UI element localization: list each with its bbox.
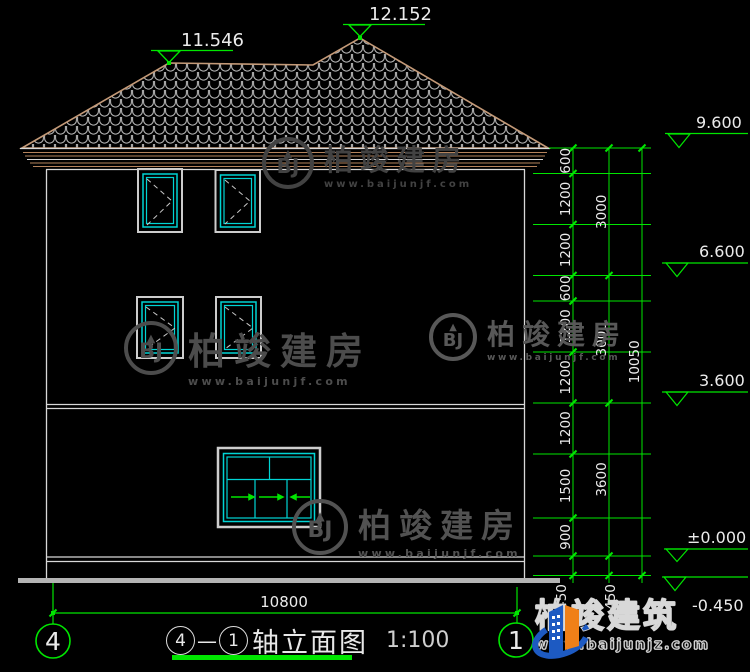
dim-label: 3000 [594, 195, 610, 229]
dim-label: 600 [558, 148, 574, 174]
roof-tile-surface [22, 38, 548, 148]
roof [20, 38, 550, 167]
title-underline [172, 655, 352, 660]
grip-dot [358, 36, 362, 40]
slide-arrow-icon [231, 495, 310, 500]
casement-swing-icon [225, 180, 250, 224]
window-mid-right [216, 297, 261, 358]
elevation-value: 6.600 [699, 242, 745, 261]
title-axis-right: 1 [219, 626, 248, 655]
axis-number-right: 1 [508, 626, 524, 655]
dim-label: 1500 [558, 469, 574, 503]
elevation-triangle-icon [666, 263, 688, 277]
dim-label: 1200 [558, 309, 574, 343]
window-mid-left [137, 297, 183, 358]
peak-level-value: 12.152 [369, 4, 432, 25]
title-separator: — [197, 629, 217, 653]
casement-swing-icon [147, 179, 172, 225]
elevation-triangle-icon [668, 134, 690, 148]
dimension-labels: 600 1200 1200 600 1200 1200 1200 1500 90… [554, 148, 643, 610]
dim-label: 1200 [558, 182, 574, 216]
window-ground [218, 448, 320, 527]
window-top-left [138, 169, 182, 232]
elevation-drawing-canvas: 600 1200 1200 600 1200 1200 1200 1500 90… [0, 0, 750, 672]
casement-swing-icon [225, 307, 253, 349]
window-top-right [216, 170, 261, 232]
axis-number-left: 4 [45, 627, 61, 656]
grip-dot [515, 611, 519, 615]
footer-logo: 柏竣建筑 www.baijunjz.com [531, 596, 710, 653]
elevation-triangle-icon [666, 549, 688, 562]
elevation-triangle-icon [664, 577, 686, 591]
elevation-value: 3.600 [699, 371, 745, 390]
dim-label: 600 [558, 275, 574, 301]
dim-label: 10050 [627, 340, 643, 383]
casement-swing-icon [146, 307, 175, 349]
dim-label: 3600 [594, 462, 610, 496]
ridge-level-value: 11.546 [181, 30, 244, 51]
cad-drawing-layer: 600 1200 1200 600 1200 1200 1200 1500 90… [0, 0, 750, 672]
dim-label: 3000 [594, 322, 610, 356]
title-scale: 1:100 [386, 628, 449, 653]
building-shell [46, 170, 525, 579]
elevation-triangle-icon [349, 25, 371, 37]
dim-label: 1200 [558, 233, 574, 267]
dim-label: 900 [558, 524, 574, 550]
dim-label: 1200 [558, 360, 574, 394]
grip-dot [167, 61, 171, 65]
grip-dot [51, 611, 55, 615]
width-dim-label: 10800 [260, 593, 308, 611]
elevation-triangle-icon [666, 392, 688, 406]
elevation-values: 9.600 6.600 3.600 ±0.000 -0.450 [687, 113, 746, 615]
elevation-triangle-icon [158, 51, 180, 63]
title-axis-left: 4 [166, 626, 195, 655]
elevation-markers [662, 134, 748, 591]
footer-logo-icon [531, 596, 593, 664]
dim-label: 1200 [558, 411, 574, 445]
elevation-value: ±0.000 [687, 528, 746, 547]
elevation-value: 9.600 [696, 113, 742, 132]
